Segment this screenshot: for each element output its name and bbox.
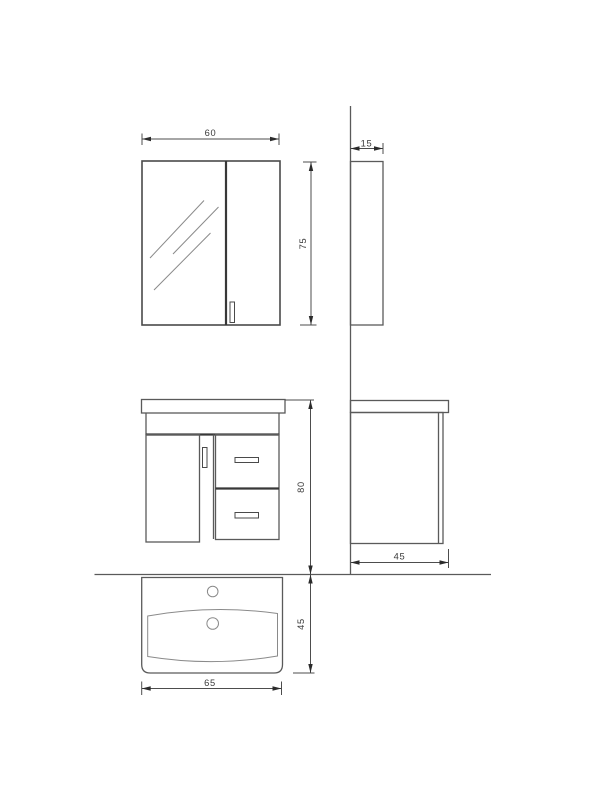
dim-label-vanity-height: 80 xyxy=(296,481,306,493)
vanity-front-view xyxy=(142,400,286,543)
dim-label-basin-depth: 45 xyxy=(296,618,306,630)
mirror-glass-hatch-icon xyxy=(150,201,219,291)
technical-drawing-page: 60 75 15 80 xyxy=(0,0,600,800)
drain-hole xyxy=(207,618,219,630)
basin-top-view xyxy=(142,578,283,674)
dim-arrow-icon xyxy=(308,400,312,409)
dim-basin-width: 65 xyxy=(142,678,282,695)
vanity-door-handle xyxy=(203,448,208,468)
mirror-cabinet-side-view xyxy=(351,162,384,326)
vanity-set-technical-drawing: 60 75 15 80 xyxy=(0,0,600,800)
dim-label-vanity-depth: 45 xyxy=(394,552,406,562)
mirror-cabinet-outline xyxy=(142,161,280,325)
dim-vanity-height: 80 xyxy=(285,400,314,575)
dim-arrow-icon xyxy=(142,686,151,690)
dim-mirror-depth: 15 xyxy=(351,139,384,155)
mirror-door-handle xyxy=(230,302,235,323)
dim-vanity-depth: 45 xyxy=(351,549,449,568)
dim-label-mirror-height: 75 xyxy=(298,238,308,250)
reference-lines xyxy=(95,106,492,575)
drawer-stack xyxy=(216,435,280,540)
dim-arrow-icon xyxy=(440,560,449,564)
dim-mirror-width: 60 xyxy=(142,128,279,145)
dim-arrow-icon xyxy=(351,146,360,150)
mirror-cabinet-side-outline xyxy=(351,162,384,326)
drawer-handle-bottom xyxy=(235,513,259,519)
dim-label-mirror-width: 60 xyxy=(205,128,217,138)
dim-arrow-icon xyxy=(309,162,313,171)
mirror-cabinet-front-view xyxy=(142,161,280,325)
dim-arrow-icon xyxy=(374,146,383,150)
dim-label-basin-width: 65 xyxy=(204,678,216,688)
dim-label-mirror-depth: 15 xyxy=(361,139,373,149)
drawer-handle-top xyxy=(235,458,259,463)
vanity-side-body xyxy=(351,413,444,544)
dim-arrow-icon xyxy=(309,316,313,325)
vanity-side-countertop xyxy=(351,401,449,413)
dim-arrow-icon xyxy=(308,664,312,673)
dim-arrow-icon xyxy=(273,686,282,690)
dim-arrow-icon xyxy=(142,137,151,141)
vanity-side-view xyxy=(351,401,449,544)
faucet-hole xyxy=(207,586,218,597)
dim-mirror-height: 75 xyxy=(298,162,317,325)
dim-arrow-icon xyxy=(270,137,279,141)
dim-arrow-icon xyxy=(308,575,312,584)
vanity-countertop xyxy=(142,400,286,414)
dim-arrow-icon xyxy=(351,560,360,564)
dim-basin-depth: 45 xyxy=(293,575,315,674)
vanity-door xyxy=(146,435,200,543)
dim-arrow-icon xyxy=(308,566,312,575)
